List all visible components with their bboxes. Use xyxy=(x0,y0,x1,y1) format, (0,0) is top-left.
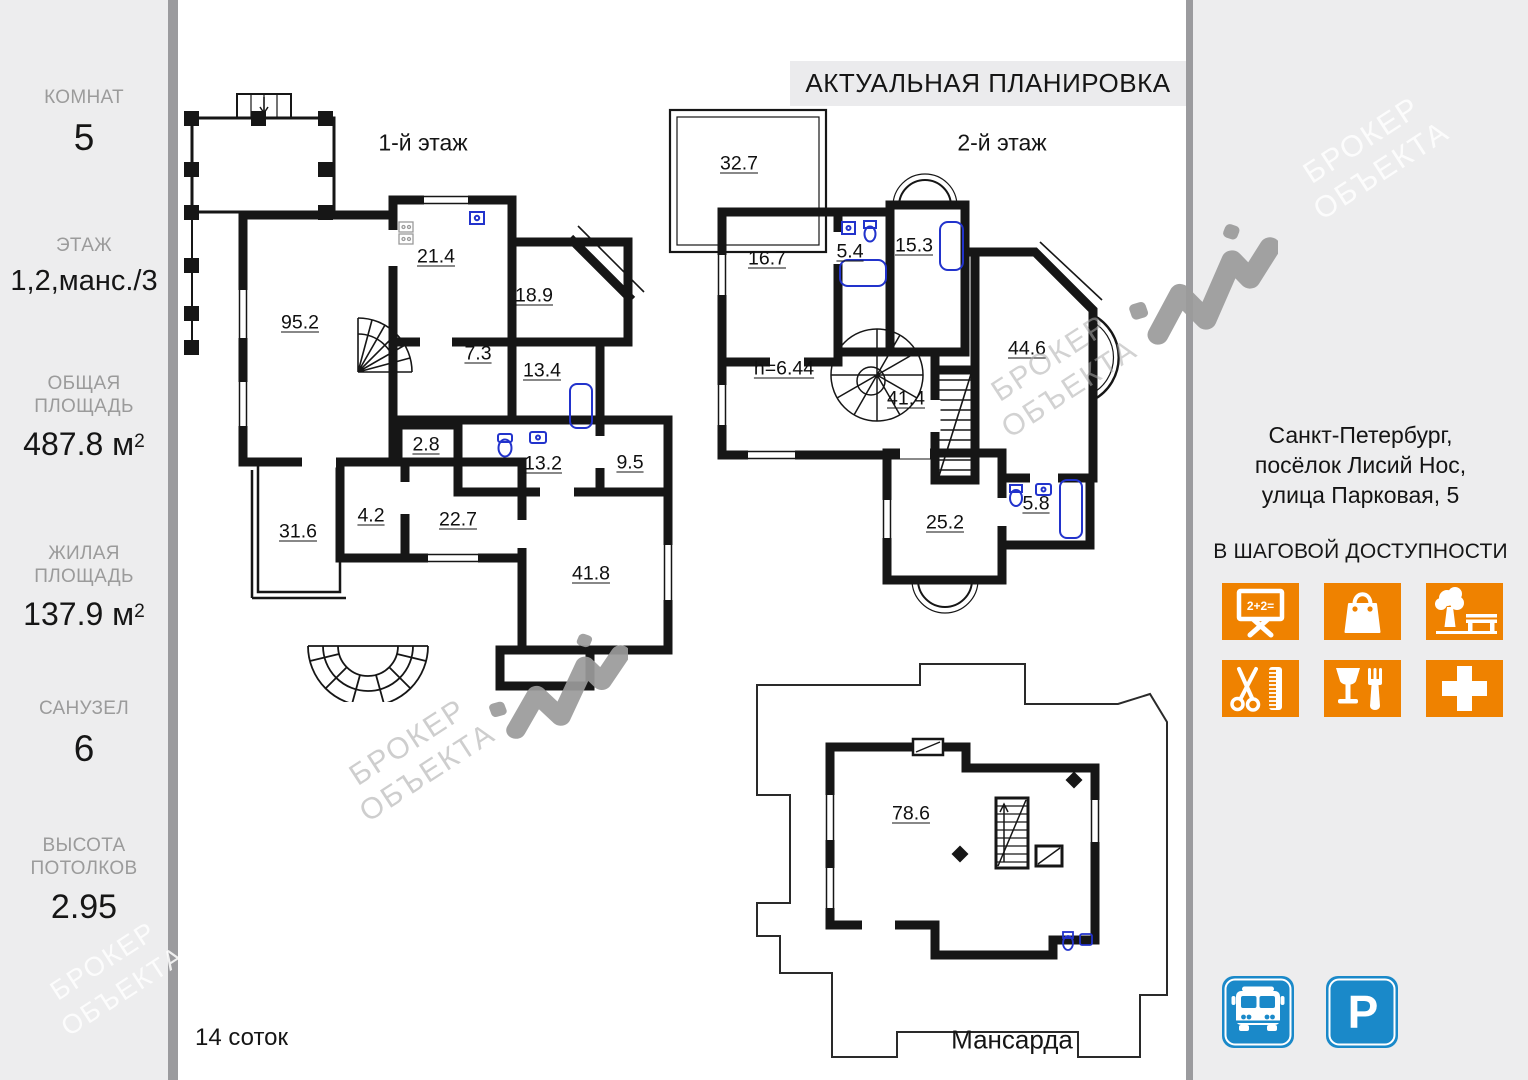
address-line: Санкт-Петербург, xyxy=(1193,420,1528,450)
room-area-label: 41.4 xyxy=(887,388,925,411)
room-area-label: 25.2 xyxy=(926,512,964,535)
stat-label: ЭТАЖ xyxy=(17,234,151,257)
parking-letter: P xyxy=(1348,986,1379,1038)
floor1-label: 1-й этаж xyxy=(378,130,467,157)
stat-floor: ЭТАЖ 1,2,манс./3 xyxy=(0,234,168,298)
bus-icon xyxy=(1222,976,1294,1048)
land-area-label: 14 соток xyxy=(195,1024,288,1052)
floor2-plan-drawing xyxy=(660,100,1205,700)
stat-bathrooms: САНУЗЕЛ 6 xyxy=(0,697,168,770)
room-area-label: 41.8 xyxy=(572,563,610,586)
terrace2-outline xyxy=(670,110,826,252)
stat-label: ОБЩАЯ ПЛОЩАДЬ xyxy=(17,372,151,418)
address-line: посёлок Лисий Нос, xyxy=(1193,450,1528,480)
stat-value: 6 xyxy=(74,728,95,769)
stat-label: КОМНАТ xyxy=(17,86,151,109)
room-area-label: 95.2 xyxy=(281,312,319,335)
mansard-label: Мансарда xyxy=(951,1025,1073,1056)
floor1-plan-drawing xyxy=(180,90,685,702)
parking-icon: P xyxy=(1326,976,1398,1048)
stat-label: ЖИЛАЯ ПЛОЩАДЬ xyxy=(17,542,151,588)
room-area-label: 7.3 xyxy=(464,343,491,366)
stat-value: 137.9 м xyxy=(23,596,134,632)
entrance-fan-stair xyxy=(308,646,428,702)
room-area-label: 5.4 xyxy=(836,241,863,264)
stat-total-area: ОБЩАЯ ПЛОЩАДЬ 487.8 м2 xyxy=(0,372,168,463)
nearby-heading: В ШАГОВОЙ ДОСТУПНОСТИ xyxy=(1193,540,1528,564)
stat-value: 487.8 м xyxy=(23,426,134,462)
stat-rooms: КОМНАТ 5 xyxy=(0,86,168,159)
park-icon xyxy=(1426,583,1503,640)
ceiling-height-note: h=6.44 xyxy=(754,358,814,381)
roof-perimeter xyxy=(757,664,1167,1057)
room-area-label: 18.9 xyxy=(515,285,553,308)
school-board-text: 2+2= xyxy=(1247,599,1274,613)
restaurant-icon xyxy=(1324,660,1401,717)
arch-bay-bottom xyxy=(912,580,978,613)
brand-logo-watermark xyxy=(1128,206,1278,346)
hairdresser-icon xyxy=(1222,660,1299,717)
stat-unit-sup: 2 xyxy=(134,601,145,622)
mansard-plan-drawing xyxy=(740,660,1210,1075)
mansard-stair xyxy=(996,798,1062,868)
real-estate-floorplan-flyer: КОМНАТ 5 ЭТАЖ 1,2,манс./3 ОБЩАЯ ПЛОЩАДЬ … xyxy=(0,0,1528,1080)
room-area-label: 31.6 xyxy=(279,521,317,544)
room-area-label: 2.8 xyxy=(412,434,439,457)
stat-value: 5 xyxy=(74,117,95,158)
stove-icon xyxy=(399,222,413,244)
room-area-label: 15.3 xyxy=(895,235,933,258)
room-area-label: 4.2 xyxy=(357,505,384,528)
room-area-label: 78.6 xyxy=(892,803,930,826)
room-area-label: 21.4 xyxy=(417,246,455,269)
bay-wall-diagonal xyxy=(570,238,632,300)
stat-value: 1,2,манс./3 xyxy=(10,265,157,297)
room-area-label: 16.7 xyxy=(748,248,786,271)
stat-unit-sup: 2 xyxy=(134,431,145,452)
address-line: улица Парковая, 5 xyxy=(1193,480,1528,510)
straight-stair xyxy=(937,374,973,476)
spiral-stair xyxy=(358,318,412,372)
room-area-label: 22.7 xyxy=(439,509,477,532)
stat-value: 2.95 xyxy=(51,888,117,926)
brand-logo-watermark xyxy=(488,618,628,740)
floor2-label: 2-й этаж xyxy=(957,130,1046,157)
stat-living-area: ЖИЛАЯ ПЛОЩАДЬ 137.9 м2 xyxy=(0,542,168,633)
room-area-label: 5.8 xyxy=(1022,493,1049,516)
school-icon: 2+2= xyxy=(1222,583,1299,640)
property-address: Санкт-Петербург, посёлок Лисий Нос, улиц… xyxy=(1193,420,1528,510)
room-area-label: 13.2 xyxy=(524,453,562,476)
room-area-label: 9.5 xyxy=(616,452,643,475)
stat-label: ВЫСОТА ПОТОЛКОВ xyxy=(17,834,151,880)
room-area-label: 32.7 xyxy=(720,153,758,176)
door-openings xyxy=(302,230,600,548)
stat-label: САНУЗЕЛ xyxy=(17,697,151,720)
room-area-label: 13.4 xyxy=(523,360,561,383)
shopping-icon xyxy=(1324,583,1401,640)
medical-icon xyxy=(1426,660,1503,717)
